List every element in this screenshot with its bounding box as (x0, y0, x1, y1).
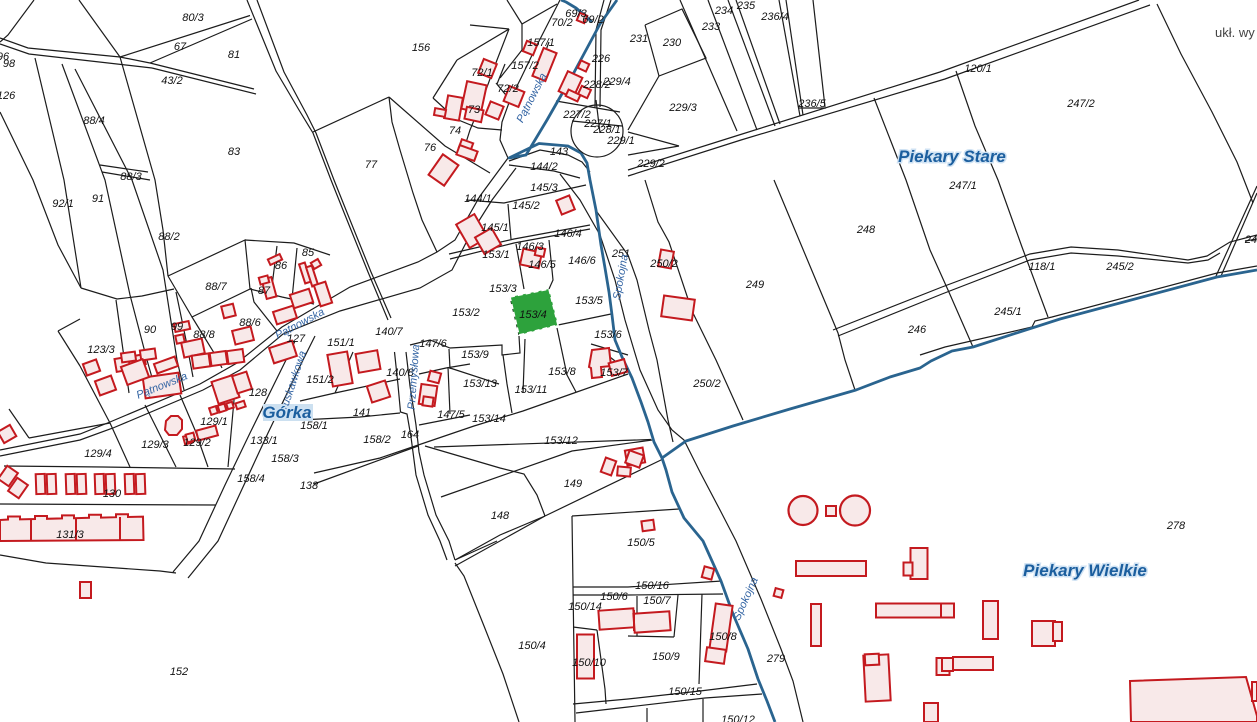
svg-text:145/1: 145/1 (481, 222, 509, 234)
svg-text:152: 152 (170, 666, 188, 678)
svg-text:153/12: 153/12 (544, 435, 578, 447)
svg-text:279: 279 (766, 653, 785, 665)
svg-text:120/1: 120/1 (964, 63, 992, 75)
svg-text:247/2: 247/2 (1066, 98, 1095, 110)
svg-text:250/2: 250/2 (692, 378, 721, 390)
svg-text:234: 234 (714, 5, 733, 17)
svg-text:158/3: 158/3 (271, 453, 299, 465)
svg-text:153/3: 153/3 (489, 283, 517, 295)
svg-text:24: 24 (1244, 234, 1257, 246)
svg-text:247/1: 247/1 (948, 180, 977, 192)
svg-text:151/2: 151/2 (306, 374, 334, 386)
svg-text:123/3: 123/3 (87, 344, 115, 356)
svg-text:147/6: 147/6 (419, 338, 447, 350)
svg-text:146/6: 146/6 (568, 255, 596, 267)
svg-text:90: 90 (144, 324, 157, 336)
svg-text:246: 246 (907, 324, 927, 336)
svg-text:43/2: 43/2 (161, 75, 182, 87)
svg-text:157/1: 157/1 (527, 37, 555, 49)
svg-text:88/2: 88/2 (158, 231, 179, 243)
svg-text:236/5: 236/5 (797, 98, 826, 110)
svg-text:Piekary Wielkie: Piekary Wielkie (1023, 561, 1147, 580)
svg-text:80/3: 80/3 (182, 12, 204, 24)
svg-text:70/2: 70/2 (551, 17, 572, 29)
svg-text:98: 98 (3, 58, 16, 70)
svg-text:150/4: 150/4 (518, 640, 546, 652)
svg-text:248: 248 (856, 224, 876, 236)
svg-text:158/2: 158/2 (363, 434, 391, 446)
svg-text:144/2: 144/2 (530, 161, 558, 173)
svg-text:153/13: 153/13 (463, 378, 498, 390)
svg-text:88/8: 88/8 (193, 329, 215, 341)
svg-text:150/9: 150/9 (652, 651, 680, 663)
svg-text:147/5: 147/5 (437, 409, 465, 421)
svg-text:235: 235 (736, 0, 756, 12)
svg-text:85: 85 (302, 247, 315, 259)
svg-text:140/7: 140/7 (375, 326, 403, 338)
svg-text:148: 148 (491, 510, 510, 522)
svg-text:153/11: 153/11 (515, 384, 548, 396)
svg-text:88/3: 88/3 (120, 171, 142, 183)
svg-text:157/2: 157/2 (511, 60, 539, 72)
svg-text:81: 81 (228, 49, 240, 61)
svg-text:ukł. wy: ukł. wy (1215, 25, 1255, 40)
svg-text:230: 230 (662, 37, 682, 49)
svg-text:245/2: 245/2 (1105, 261, 1134, 273)
svg-text:126: 126 (0, 90, 16, 102)
svg-text:87: 87 (258, 285, 271, 297)
svg-text:150/10: 150/10 (572, 657, 607, 669)
svg-text:153/4: 153/4 (519, 309, 547, 321)
svg-text:74: 74 (449, 125, 461, 137)
svg-text:76: 76 (424, 142, 437, 154)
svg-text:229/2: 229/2 (636, 158, 665, 170)
svg-text:141: 141 (353, 407, 371, 419)
svg-text:129/2: 129/2 (183, 437, 211, 449)
svg-text:Górka: Górka (262, 403, 311, 422)
svg-text:88/7: 88/7 (205, 281, 227, 293)
svg-text:150/5: 150/5 (627, 537, 655, 549)
svg-text:250/2: 250/2 (649, 258, 678, 270)
svg-text:83: 83 (228, 146, 241, 158)
svg-text:278: 278 (1166, 520, 1186, 532)
svg-text:146/5: 146/5 (528, 259, 556, 271)
svg-text:153/5: 153/5 (575, 295, 603, 307)
svg-text:153/9: 153/9 (461, 349, 489, 361)
svg-text:86: 86 (275, 260, 288, 272)
svg-text:229/3: 229/3 (668, 102, 697, 114)
svg-text:129/4: 129/4 (84, 448, 112, 460)
svg-text:92/1: 92/1 (52, 198, 73, 210)
svg-text:129/3: 129/3 (141, 439, 169, 451)
svg-text:146/4: 146/4 (554, 228, 582, 240)
svg-text:153/2: 153/2 (452, 307, 480, 319)
svg-text:67: 67 (174, 41, 187, 53)
svg-text:150/15: 150/15 (668, 686, 703, 698)
svg-text:145/3: 145/3 (530, 182, 558, 194)
svg-text:118/1: 118/1 (1029, 261, 1056, 273)
svg-text:128: 128 (249, 387, 268, 399)
svg-text:153/8: 153/8 (548, 366, 576, 378)
svg-text:229/4: 229/4 (602, 76, 631, 88)
svg-text:138: 138 (300, 480, 319, 492)
svg-text:149: 149 (564, 478, 582, 490)
svg-text:153/6: 153/6 (594, 329, 622, 341)
svg-text:131/3: 131/3 (56, 529, 84, 541)
svg-text:150/7: 150/7 (643, 595, 671, 607)
svg-text:164: 164 (401, 429, 419, 441)
svg-text:129/1: 129/1 (200, 416, 228, 428)
svg-text:153/14: 153/14 (472, 413, 506, 425)
svg-text:91: 91 (92, 193, 104, 205)
svg-text:153/7: 153/7 (600, 367, 628, 379)
svg-text:133/1: 133/1 (250, 435, 278, 447)
svg-text:231: 231 (629, 33, 648, 45)
svg-text:150/12: 150/12 (721, 714, 755, 722)
svg-text:229/1: 229/1 (606, 135, 635, 147)
svg-text:72/1: 72/1 (471, 67, 492, 79)
svg-text:88/4: 88/4 (83, 115, 104, 127)
svg-text:150/8: 150/8 (709, 631, 737, 643)
svg-text:226: 226 (591, 53, 611, 65)
svg-text:143: 143 (550, 146, 569, 158)
svg-text:69/2: 69/2 (582, 14, 603, 26)
svg-text:72/2: 72/2 (497, 83, 518, 95)
svg-text:99: 99 (171, 321, 183, 333)
svg-text:73: 73 (468, 104, 481, 116)
svg-text:245/1: 245/1 (993, 306, 1022, 318)
svg-text:130: 130 (103, 488, 122, 500)
svg-text:249: 249 (745, 279, 764, 291)
svg-text:153/1: 153/1 (482, 249, 510, 261)
svg-text:150/14: 150/14 (568, 601, 602, 613)
svg-text:233: 233 (701, 21, 721, 33)
svg-text:144/1: 144/1 (464, 193, 492, 205)
svg-text:146/3: 146/3 (516, 241, 544, 253)
svg-text:77: 77 (365, 159, 378, 171)
svg-text:156: 156 (412, 42, 431, 54)
svg-text:Piekary Stare: Piekary Stare (898, 147, 1006, 166)
svg-text:88/6: 88/6 (239, 317, 261, 329)
svg-text:145/2: 145/2 (512, 200, 540, 212)
svg-text:158/4: 158/4 (237, 473, 265, 485)
svg-text:151/1: 151/1 (327, 337, 355, 349)
svg-text:150/6: 150/6 (600, 591, 628, 603)
svg-text:150/16: 150/16 (635, 580, 670, 592)
svg-text:236/4: 236/4 (760, 11, 789, 23)
